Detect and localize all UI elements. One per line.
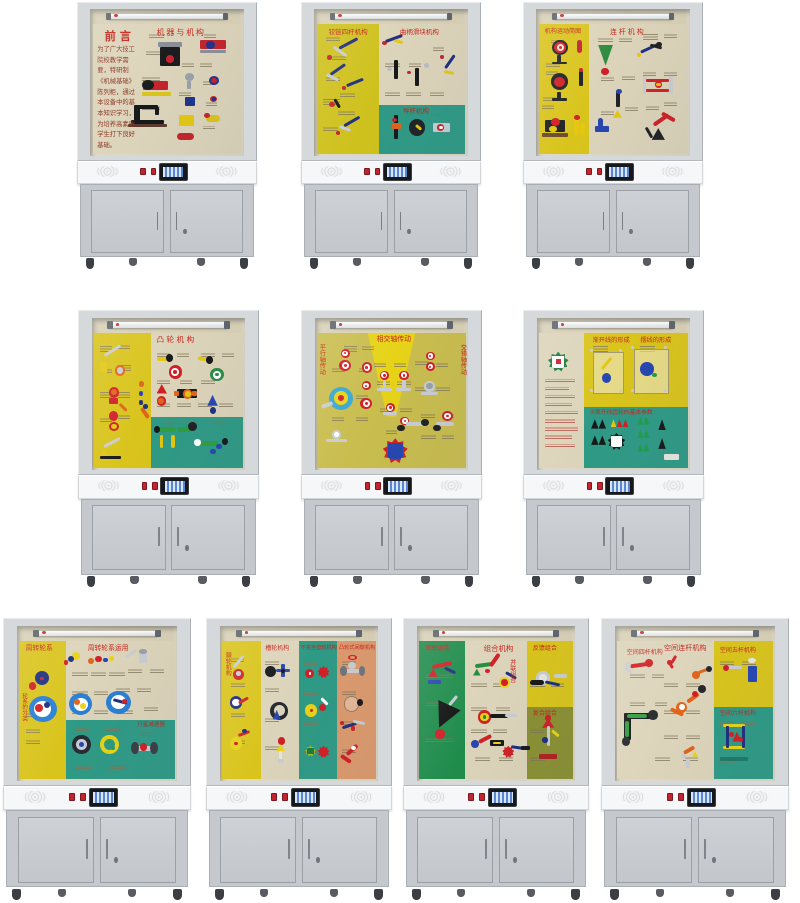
caster-wheel (128, 889, 136, 898)
door-handle[interactable] (157, 212, 159, 230)
mechanism-model-part (645, 659, 653, 667)
mechanism-model-part (329, 387, 353, 410)
door-handle[interactable] (622, 212, 624, 230)
display-board: 空间连杆机构空间四杆机构空间五杆机构空间六杆机构 (617, 641, 772, 779)
door-handle[interactable] (158, 527, 160, 546)
caster-wheel (240, 258, 248, 268)
board-title: 周转轮系 (26, 644, 53, 652)
door-handle[interactable] (485, 839, 487, 858)
cabinet-door-left[interactable] (92, 505, 166, 570)
mechanism-model-part (131, 742, 139, 754)
casters (77, 257, 257, 272)
cabinet-body (526, 184, 701, 257)
board-title: 并联组合 (508, 659, 516, 683)
control-screen[interactable] (384, 478, 411, 494)
cabinet-door-left[interactable] (315, 190, 388, 252)
mechanism-model-part (174, 391, 178, 396)
cabinet-door-right[interactable] (171, 505, 245, 570)
door-handle[interactable] (704, 839, 706, 858)
speaker-grille (320, 480, 343, 491)
mechanism-model-part (415, 68, 419, 86)
power-button[interactable] (586, 168, 591, 175)
control-counter (301, 475, 482, 499)
power-button[interactable] (587, 482, 592, 489)
control-screen[interactable] (161, 478, 188, 494)
mechanism-model-part (723, 665, 729, 671)
caster-wheel (575, 576, 583, 584)
caster-wheel (610, 889, 618, 900)
casters (403, 887, 589, 903)
info-text-block (622, 76, 635, 80)
info-text-block (231, 713, 245, 717)
door-handle[interactable] (288, 839, 290, 858)
control-screen[interactable] (489, 789, 517, 805)
mechanism-model-part (109, 398, 118, 405)
info-text-block (109, 765, 125, 769)
display-window: 相交轴传动平行轴传动交错轴传动 (315, 318, 469, 471)
cabinet-door-right[interactable] (100, 817, 177, 883)
tube-end-cap (433, 630, 439, 637)
display-board: 棘轮机构槽轮机构不完全齿轮机构凸轮式间歇机构 (222, 641, 376, 779)
caster-wheel (197, 258, 205, 266)
board-title: 前 言 (105, 30, 131, 44)
speaker-grille (661, 166, 684, 177)
info-text-block (720, 762, 736, 766)
control-screen[interactable] (90, 789, 118, 805)
info-text-block (686, 735, 700, 739)
mechanism-model-part (643, 76, 647, 94)
mechanism-model-part (327, 55, 332, 60)
display-case: 凸 轮 机 构 (78, 310, 259, 475)
door-handle[interactable] (400, 212, 402, 230)
mechanism-model-part (542, 133, 569, 136)
power-button[interactable] (364, 168, 369, 175)
door-handle[interactable] (106, 839, 108, 858)
board-title: 连 杆 机 构 (610, 28, 644, 36)
control-screen[interactable] (688, 789, 716, 805)
info-text-block (342, 691, 356, 695)
info-text-block (664, 735, 678, 739)
mechanism-model-part (720, 757, 748, 761)
info-text-block (75, 765, 91, 769)
mechanism-model-part (115, 365, 125, 376)
cabinet-1-machines-and-mechanisms: 前 言机器与机构为了广大技工院校教学需要，特研制《机械基础》陈列柜，通过本设备中… (77, 2, 257, 272)
tube-end-cap (447, 321, 452, 328)
info-text-block (304, 691, 318, 695)
mechanism-model-part (648, 710, 657, 720)
mechanism-model-part (139, 391, 143, 396)
cabinet-door-left[interactable] (616, 817, 693, 883)
casters (301, 257, 481, 272)
door-handle[interactable] (622, 527, 624, 546)
board-title: 铰链四杆机构 (329, 28, 368, 36)
caster-wheel (686, 258, 694, 268)
info-text-block (213, 422, 225, 426)
control-counter (523, 161, 703, 184)
speaker-grille (745, 791, 769, 803)
speaker-grille (215, 166, 238, 177)
speaker-grille (320, 166, 343, 177)
info-text-block (182, 63, 194, 67)
keyhole (114, 857, 118, 863)
mechanism-model-part (142, 92, 172, 96)
info-text-block (664, 34, 677, 38)
info-text-block (177, 403, 190, 407)
tube-end-cap (155, 630, 161, 637)
mechanism-model-part (505, 714, 517, 717)
cabinet-8-intermittent-mechanisms: 棘轮机构槽轮机构不完全齿轮机构凸轮式间歇机构 (206, 618, 392, 903)
fluorescent-tube-icon (553, 322, 673, 327)
info-text-block (150, 669, 164, 673)
fluorescent-tube-icon (331, 14, 450, 19)
control-counter (206, 786, 392, 810)
caster-wheel (465, 576, 473, 587)
mechanism-model-part (185, 73, 194, 81)
casters (206, 887, 392, 903)
mechanism-model-part (210, 449, 215, 454)
door-handle[interactable] (603, 527, 605, 546)
door-handle[interactable] (86, 839, 88, 858)
cabinet-door-left[interactable] (537, 190, 610, 252)
power-button[interactable] (271, 793, 277, 801)
keyhole (408, 545, 412, 551)
door-handle[interactable] (176, 212, 178, 230)
mechanism-model-part (748, 666, 757, 683)
control-counter (601, 786, 789, 810)
cabinet-door-right[interactable] (394, 190, 467, 252)
board-title: 机构运动简图 (545, 28, 582, 36)
mechanism-model-part (209, 76, 219, 85)
info-text-block (304, 721, 318, 725)
caster-wheel (353, 576, 361, 584)
mechanism-model-part (552, 98, 567, 101)
cabinet-door-left[interactable] (417, 817, 493, 883)
info-text-block (545, 435, 572, 438)
speaker-grille (97, 480, 120, 491)
tube-end-cap (107, 321, 112, 328)
door-handle[interactable] (308, 839, 310, 858)
display-board: 前 言机器与机构为了广大技工院校教学需要，特研制《机械基础》陈列柜，通过本设备中… (93, 24, 242, 154)
power-button[interactable] (140, 168, 145, 175)
caster-wheel (130, 576, 138, 584)
cabinet-door-left[interactable] (18, 817, 95, 883)
mechanism-model-part (579, 71, 583, 87)
mechanism-model-part (574, 118, 578, 136)
keyhole (630, 545, 634, 551)
caster-wheel (643, 258, 651, 266)
display-board: 周转轮系周转轮系运用轮系的分类行星减速器 (19, 641, 174, 779)
mechanism-model-part (664, 454, 679, 459)
power-button[interactable] (667, 793, 673, 801)
info-text-block (630, 702, 646, 706)
info-text-block (206, 102, 218, 106)
mechanism-model-part (160, 435, 164, 447)
mechanism-model-part (442, 411, 452, 421)
door-handle[interactable] (400, 527, 402, 546)
door-handle[interactable] (505, 839, 507, 858)
demo-button[interactable] (80, 793, 86, 801)
demo-button[interactable] (479, 793, 485, 801)
cabinet-2-planar-linkages: 铰链四杆机构曲柄滑块机构导杆机构 (301, 2, 481, 272)
fluorescent-tube-icon (633, 631, 758, 636)
cabinet-door-right[interactable] (698, 817, 775, 883)
door-handle[interactable] (177, 527, 179, 546)
display-board: 凸 轮 机 构 (94, 333, 243, 468)
board-title: 不完全齿轮机构 (301, 645, 337, 652)
info-text-block (421, 414, 434, 418)
display-case: 渐开线的形成摆线的形成③渐开线齿轮的基本参数 (523, 310, 704, 475)
keyhole (513, 857, 517, 863)
info-text-block (442, 435, 454, 439)
control-screen[interactable] (606, 164, 633, 179)
display-case: 机构运动简图连 杆 机 构 (523, 2, 703, 161)
mechanism-model-part (547, 726, 550, 745)
caster-wheel (87, 576, 95, 587)
info-text-block (231, 682, 245, 686)
mechanism-model-part (72, 735, 91, 754)
display-board: 组合机构并联组合串联组合反馈组合复合组合 (419, 641, 573, 779)
board-title: 空间五杆机构 (720, 647, 756, 655)
demo-button[interactable] (375, 482, 380, 489)
mechanism-model-part (340, 666, 346, 676)
speaker-grille (440, 480, 463, 491)
cabinet-body (526, 499, 702, 575)
cabinet-door-left[interactable] (315, 505, 389, 570)
caster-wheel (412, 889, 420, 900)
keyhole (712, 857, 716, 863)
board-title: ③渐开线齿轮的基本参数 (590, 410, 653, 417)
tube-indicator-dot (560, 14, 564, 17)
power-button[interactable] (365, 482, 370, 489)
display-window: 空间连杆机构空间四杆机构空间五杆机构空间六杆机构 (615, 626, 775, 781)
cabinet-door-right[interactable] (170, 190, 243, 252)
mechanism-model-part (602, 373, 611, 382)
control-screen[interactable] (606, 478, 633, 494)
tube-end-cap (553, 630, 559, 637)
info-text-block (200, 63, 212, 67)
cabinet-body (406, 810, 586, 887)
demo-button[interactable] (151, 168, 156, 175)
caster-wheel (464, 258, 472, 268)
control-screen[interactable] (384, 164, 411, 179)
info-text-block (265, 688, 279, 692)
board-title: 凸轮式间歇机构 (339, 645, 375, 652)
info-text-block (179, 92, 191, 96)
info-text-block (140, 732, 154, 736)
control-counter (523, 475, 704, 499)
mechanism-model-part (698, 685, 706, 693)
door-handle[interactable] (603, 212, 605, 230)
info-text-block (203, 126, 215, 130)
info-text-block (430, 92, 445, 96)
mechanism-model-part (377, 388, 392, 391)
info-text-block (332, 417, 344, 421)
caster-wheel (12, 889, 20, 900)
mechanism-model-part (150, 742, 158, 754)
tube-indicator-dot (339, 323, 343, 326)
cabinet-door-right[interactable] (499, 817, 575, 883)
cabinet-5-gear-drives: 相交轴传动平行轴传动交错轴传动 (301, 310, 482, 590)
mechanism-model-part (171, 435, 175, 447)
info-text-block (400, 408, 412, 412)
mechanism-model-part (627, 714, 647, 718)
display-window: 铰链四杆机构曲柄滑块机构导杆机构 (314, 9, 467, 156)
display-case: 空间连杆机构空间四杆机构空间五杆机构空间六杆机构 (601, 618, 789, 786)
demo-button[interactable] (282, 793, 288, 801)
display-window: 组合机构并联组合串联组合反馈组合复合组合 (417, 626, 575, 781)
mechanism-model-part (601, 68, 608, 75)
power-button[interactable] (142, 482, 147, 489)
info-text-block (356, 417, 368, 421)
mechanism-model-part (278, 737, 286, 745)
control-screen[interactable] (292, 789, 320, 805)
info-text-block (646, 105, 659, 110)
board-title: 交错轴传动 (459, 344, 467, 375)
mechanism-model-part (392, 123, 401, 130)
info-text-block (471, 682, 486, 686)
cabinet-door-left[interactable] (220, 817, 296, 883)
info-text-block (26, 729, 40, 733)
mechanism-model-part (681, 754, 686, 759)
mechanism-model-part (109, 411, 118, 420)
caster-wheel (310, 576, 318, 587)
info-text-block (219, 403, 232, 407)
tube-indicator-dot (42, 631, 46, 634)
info-text-block (323, 126, 338, 131)
display-case: 周转轮系周转轮系运用轮系的分类行星减速器 (3, 618, 191, 786)
info-text-block (530, 729, 545, 733)
info-text-block (545, 395, 575, 398)
info-text-block (265, 746, 279, 750)
mechanism-model-part (669, 76, 673, 94)
tube-end-cap (669, 321, 674, 328)
tube-end-cap (236, 630, 242, 637)
mechanism-model-part (598, 118, 602, 128)
cabinet-door-right[interactable] (616, 505, 690, 570)
keyhole (183, 229, 187, 234)
info-text-block (664, 682, 678, 686)
info-text-block (545, 419, 575, 422)
cabinet-door-left[interactable] (91, 190, 164, 252)
fluorescent-tube-icon (553, 14, 672, 19)
info-text-block (433, 113, 445, 117)
fluorescent-tube-icon (331, 322, 451, 327)
display-board: 相交轴传动平行轴传动交错轴传动 (317, 333, 466, 468)
info-text-block (144, 707, 158, 711)
door-handle[interactable] (684, 839, 686, 858)
mechanism-model-part (100, 456, 121, 459)
mechanism-model-part (421, 392, 437, 395)
demo-button[interactable] (375, 168, 380, 175)
mechanism-model-part (204, 113, 210, 118)
display-case: 铰链四杆机构曲柄滑块机构导杆机构 (301, 2, 481, 161)
info-text-block (177, 352, 189, 357)
display-window: 棘轮机构槽轮机构不完全齿轮机构凸轮式间歇机构 (220, 626, 378, 781)
info-text-block (545, 403, 572, 406)
mechanism-model-part (359, 666, 365, 676)
mechanism-model-part (206, 356, 213, 364)
fluorescent-tube-icon (108, 322, 228, 327)
door-handle[interactable] (381, 527, 383, 546)
cabinet-door-right[interactable] (302, 817, 378, 883)
info-text-block (106, 726, 120, 730)
board-title: 为了广大技工院校教学需要，特研制《机械基础》陈列柜，通过本设备中的基本知识学习，… (97, 45, 137, 152)
info-text-block (406, 92, 421, 96)
mechanism-model-part (622, 737, 630, 745)
mechanism-model-part (236, 671, 241, 675)
info-text-block (137, 688, 151, 692)
mechanism-model-part (577, 40, 581, 53)
display-window: 凸 轮 机 构 (92, 318, 246, 471)
mechanism-model-part (437, 124, 444, 131)
cabinet-door-right[interactable] (616, 190, 689, 252)
info-text-block (493, 729, 507, 733)
info-text-block (94, 691, 108, 695)
mechanism-model-part (200, 50, 227, 53)
caster-wheel (260, 889, 268, 898)
board-title: 空间四杆机构 (627, 649, 663, 657)
speaker-grille (349, 791, 373, 803)
board-title: 串联组合 (425, 645, 449, 653)
tube-end-cap (106, 13, 111, 20)
mechanism-model-part (326, 439, 347, 442)
fluorescent-tube-icon (237, 631, 360, 636)
display-window: 渐开线的形成摆线的形成③渐开线齿轮的基本参数 (537, 318, 691, 471)
power-button[interactable] (468, 793, 474, 801)
tube-end-cap (356, 630, 362, 637)
casters (523, 257, 703, 272)
mechanism-model-part (140, 743, 146, 751)
mechanism-model-part (329, 102, 335, 107)
info-text-block (441, 674, 453, 678)
caster-wheel (421, 576, 429, 584)
cabinet-door-left[interactable] (537, 505, 611, 570)
power-button[interactable] (69, 793, 75, 801)
info-text-block (471, 729, 486, 733)
tube-indicator-dot (640, 631, 644, 634)
door-handle[interactable] (381, 212, 383, 230)
speaker-grille (621, 791, 645, 803)
mechanism-model-part (341, 349, 350, 358)
info-text-block (542, 105, 554, 109)
control-screen[interactable] (160, 164, 187, 179)
mechanism-model-part (692, 691, 698, 697)
mechanism-model-part (402, 380, 406, 388)
cabinet-door-right[interactable] (394, 505, 468, 570)
info-text-block (545, 444, 575, 447)
mechanism-model-part (493, 742, 501, 744)
caster-wheel (215, 889, 223, 900)
info-text-block (545, 379, 575, 382)
keyhole (316, 857, 320, 863)
demo-button[interactable] (678, 793, 684, 801)
info-text-block (338, 110, 356, 115)
info-text-block (109, 671, 125, 675)
mechanism-model-part (139, 649, 147, 653)
demo-button[interactable] (152, 482, 157, 489)
mechanism-model-part (265, 666, 276, 677)
board-title: 相交轴传动 (377, 335, 411, 344)
demo-button[interactable] (597, 482, 602, 489)
control-counter (301, 161, 481, 184)
cabinet-6-involute-gears: 渐开线的形成摆线的形成③渐开线齿轮的基本参数 (523, 310, 704, 590)
info-text-block (374, 362, 386, 366)
tube-end-cap (447, 13, 452, 20)
mechanism-model-part (646, 89, 670, 92)
board-title: 行星减速器 (137, 722, 165, 729)
speaker-grille (439, 166, 462, 177)
demo-button[interactable] (597, 168, 602, 175)
